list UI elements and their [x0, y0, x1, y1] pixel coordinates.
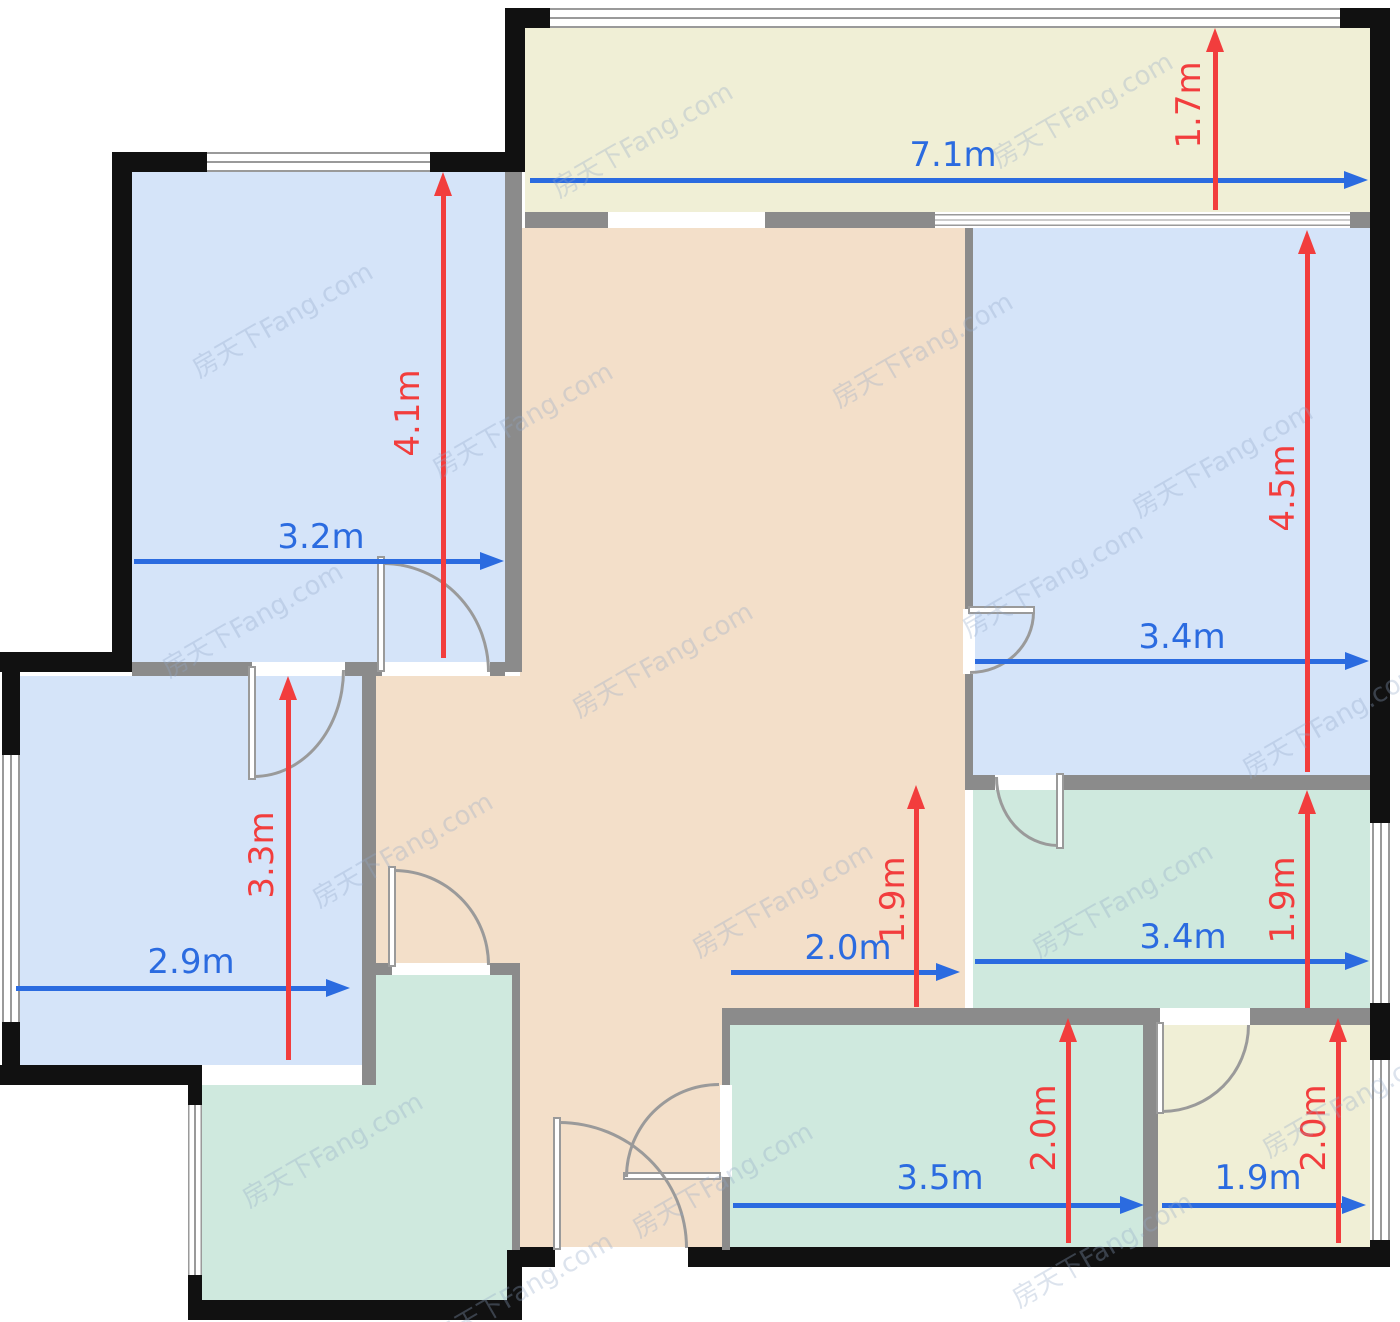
dimension-arrowhead [1345, 952, 1369, 970]
dimension-line [914, 807, 919, 1007]
dimension-arrowhead [1206, 28, 1224, 52]
dimension-arrowhead [1345, 652, 1369, 670]
dimension-label-bed-right-height: 4.5m [1264, 428, 1302, 548]
dimension-line [731, 970, 938, 975]
dimension-line [441, 194, 446, 658]
dimension-arrowhead [326, 979, 350, 997]
interior-wall-segment [505, 172, 522, 672]
exterior-wall-segment [525, 8, 550, 28]
window [188, 1105, 202, 1275]
exterior-wall-segment [112, 152, 132, 662]
dimension-line [1213, 50, 1218, 210]
dimension-line [733, 1203, 1122, 1208]
door-opening [1160, 1008, 1250, 1025]
exterior-wall-segment [1370, 8, 1390, 823]
interior-wall-segment [1350, 212, 1370, 228]
exterior-wall-segment [188, 1300, 522, 1320]
interior-wall-segment [1250, 1008, 1370, 1025]
dimension-label-bottom-center-height: 2.0m [1025, 1068, 1063, 1188]
dimension-label-balcony-height: 1.7m [1170, 45, 1208, 165]
window [1372, 1060, 1390, 1240]
exterior-wall-segment [112, 152, 207, 172]
dimension-line [1162, 1203, 1344, 1208]
window [1372, 823, 1390, 1003]
interior-wall-segment [965, 775, 995, 790]
window [935, 214, 1350, 226]
interior-wall-segment [132, 662, 252, 676]
door-opening [720, 1085, 732, 1177]
room-kitchen-lower [200, 1085, 512, 1305]
exterior-wall-segment [188, 1275, 202, 1320]
dimension-line [134, 559, 480, 564]
dimension-label-bath-height: 1.9m [1264, 840, 1302, 960]
dimension-label-bed-left-width: 2.9m [131, 943, 251, 981]
dimension-arrowhead [907, 785, 925, 809]
dimension-label-bed-left-height: 3.3m [243, 795, 281, 915]
dimension-arrowhead [480, 552, 504, 570]
interior-wall-segment [965, 228, 973, 609]
exterior-wall-segment [688, 1247, 1390, 1267]
dimension-arrowhead [1329, 1018, 1347, 1042]
exterior-wall-segment [1370, 1003, 1390, 1060]
room-bottom-center [730, 1025, 1143, 1247]
window [2, 755, 20, 1022]
interior-wall-segment [722, 1008, 1160, 1025]
dimension-arrowhead [936, 963, 960, 981]
dimension-line [1305, 252, 1310, 772]
dimension-label-bottom-right-height: 2.0m [1295, 1068, 1333, 1188]
dimension-arrowhead [434, 172, 452, 196]
dimension-label-bed-top-left-width: 3.2m [261, 518, 381, 556]
sliding-door-opening [608, 212, 765, 228]
dimension-arrowhead [1344, 171, 1368, 189]
room-balcony-top [525, 28, 1370, 212]
dimension-label-balcony-width: 7.1m [893, 136, 1013, 174]
dimension-line [530, 178, 1350, 183]
entrance-door-opening [555, 1247, 688, 1267]
window [550, 8, 1340, 28]
floor-plan: 3.2m 4.1m 7.1m 1.7m 3.4m 4.5m 2.9m 3.3m … [0, 0, 1400, 1322]
dimension-label-hall-height: 1.9m [874, 840, 912, 960]
dimension-arrowhead [279, 676, 297, 700]
interior-wall-segment [490, 662, 505, 676]
room-bedroom-right [973, 228, 1370, 775]
interior-wall-segment [512, 963, 520, 1250]
dimension-line [1336, 1040, 1341, 1243]
dimension-line [16, 986, 328, 991]
interior-wall-segment [490, 963, 512, 975]
interior-wall-segment [722, 1177, 730, 1250]
interior-wall-segment [765, 212, 935, 228]
dimension-line [975, 659, 1347, 664]
dimension-arrowhead [1298, 230, 1316, 254]
dimension-arrowhead [1342, 1196, 1366, 1214]
dimension-label-bottom-center-width: 3.5m [880, 1159, 1000, 1197]
interior-wall-segment [525, 212, 608, 228]
dimension-label-bed-right-width: 3.4m [1122, 618, 1242, 656]
interior-wall-segment [965, 674, 973, 775]
dimension-arrowhead [1298, 790, 1316, 814]
exterior-wall-segment [2, 652, 20, 755]
interior-wall-segment [362, 662, 376, 1085]
interior-wall-segment [722, 1008, 730, 1085]
dimension-label-bath-width: 3.4m [1123, 918, 1243, 956]
dimension-line [286, 698, 291, 1060]
window [207, 152, 430, 172]
dimension-label-bed-top-left-height: 4.1m [389, 353, 427, 473]
dimension-line [1305, 812, 1310, 1008]
exterior-wall-segment [505, 8, 525, 172]
dimension-arrowhead [1059, 1018, 1077, 1042]
exterior-wall-segment [0, 1065, 200, 1085]
dimension-line [1066, 1040, 1071, 1243]
dimension-arrowhead [1120, 1196, 1144, 1214]
room-kitchen-upper [376, 972, 512, 1085]
interior-wall-segment [1062, 775, 1370, 790]
